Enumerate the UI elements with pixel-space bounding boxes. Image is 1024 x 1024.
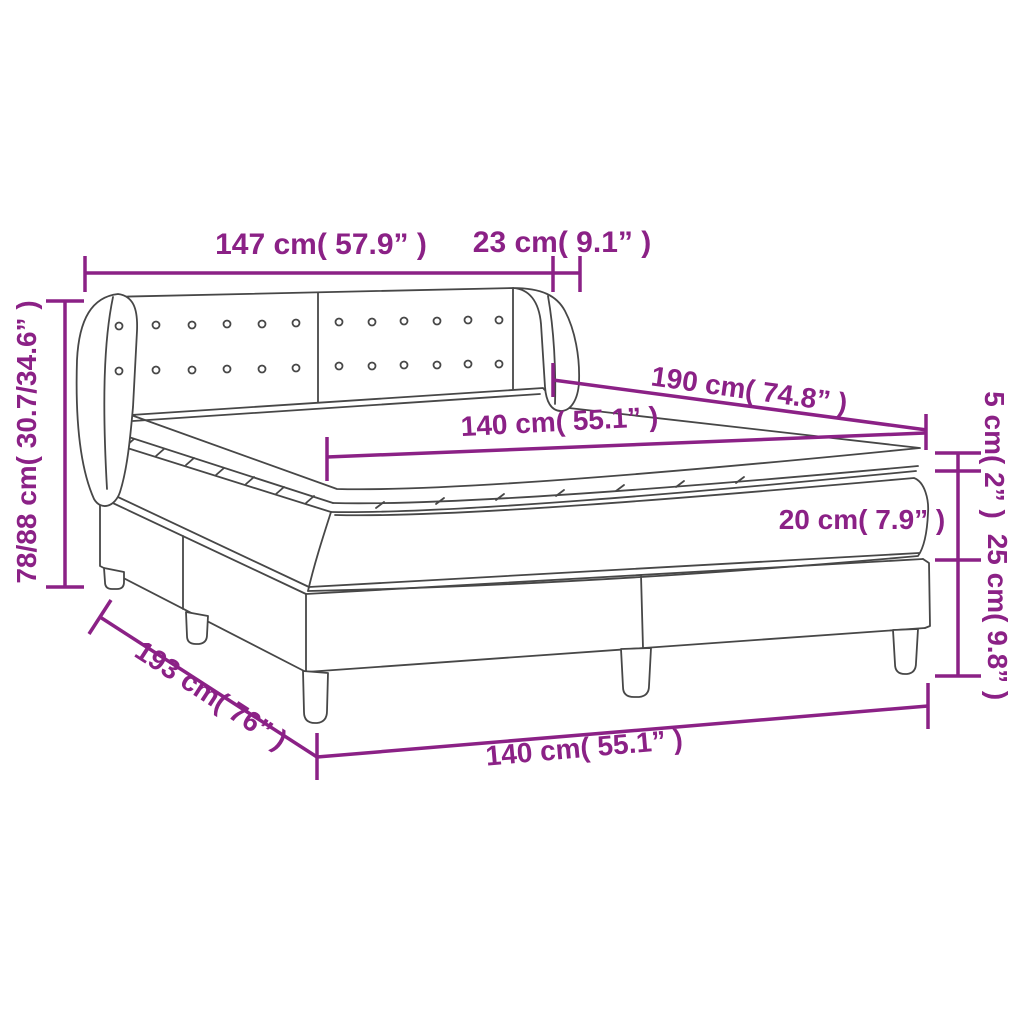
dimension-diagram: 147 cm( 57.9” ) 23 cm( 9.1” ) 190 cm( 74… bbox=[0, 0, 1024, 1024]
base-top-front-edge bbox=[306, 559, 923, 594]
base-right-face bbox=[923, 559, 930, 628]
dimension-labels: 147 cm( 57.9” ) 23 cm( 9.1” ) 190 cm( 74… bbox=[11, 226, 1013, 772]
dim-tick bbox=[89, 600, 111, 634]
mattress-corner-edge bbox=[308, 512, 331, 591]
bed-leg bbox=[186, 612, 208, 644]
base-left-face bbox=[100, 497, 306, 672]
label-overall-height: 78/88 cm( 30.7/34.6” ) bbox=[11, 300, 42, 583]
label-bed-length: 190 cm( 74.8” ) bbox=[649, 360, 849, 418]
base-front-bottom-edge bbox=[306, 628, 925, 672]
label-mattress-height: 20 cm( 7.9” ) bbox=[779, 504, 946, 535]
mattress-bottom-front bbox=[309, 553, 919, 587]
bed-leg bbox=[104, 568, 124, 589]
base-seam-front bbox=[641, 575, 643, 648]
bed-leg bbox=[893, 629, 918, 674]
bed-leg bbox=[303, 671, 328, 723]
label-base-height: 25 cm( 9.8” ) bbox=[982, 534, 1013, 701]
diagram-canvas: 147 cm( 57.9” ) 23 cm( 9.1” ) 190 cm( 74… bbox=[0, 0, 1024, 1024]
mattress-bottom-left bbox=[103, 490, 309, 587]
label-headboard-width: 147 cm( 57.9” ) bbox=[215, 228, 427, 261]
label-wing-depth: 23 cm( 9.1” ) bbox=[473, 226, 651, 259]
label-topper-height: 5 cm( 2” ) bbox=[979, 391, 1010, 519]
headboard-buttons bbox=[116, 317, 503, 375]
label-base-width: 140 cm( 55.1” ) bbox=[484, 723, 684, 771]
bed-leg bbox=[621, 648, 651, 697]
base-top-left-edge bbox=[100, 497, 306, 594]
